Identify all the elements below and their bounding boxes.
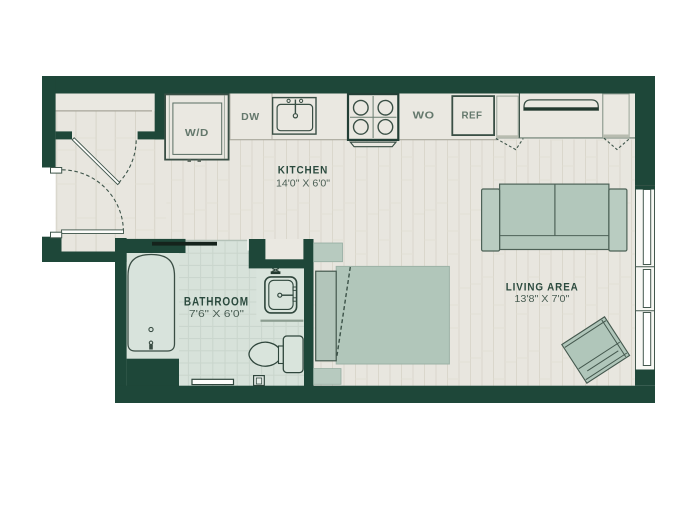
svg-text:W/D: W/D	[185, 127, 209, 139]
svg-text:7'6" X 6'0": 7'6" X 6'0"	[189, 308, 244, 320]
svg-text:14'0" X 6'0": 14'0" X 6'0"	[276, 177, 330, 189]
svg-text:DW: DW	[241, 111, 260, 123]
svg-text:WO: WO	[413, 110, 435, 122]
svg-text:13'8" X 7'0": 13'8" X 7'0"	[514, 293, 569, 305]
svg-text:BATHROOM: BATHROOM	[184, 297, 249, 309]
svg-text:LIVING AREA: LIVING AREA	[506, 282, 579, 294]
svg-text:REF: REF	[462, 110, 483, 122]
svg-text:KITCHEN: KITCHEN	[278, 165, 329, 177]
